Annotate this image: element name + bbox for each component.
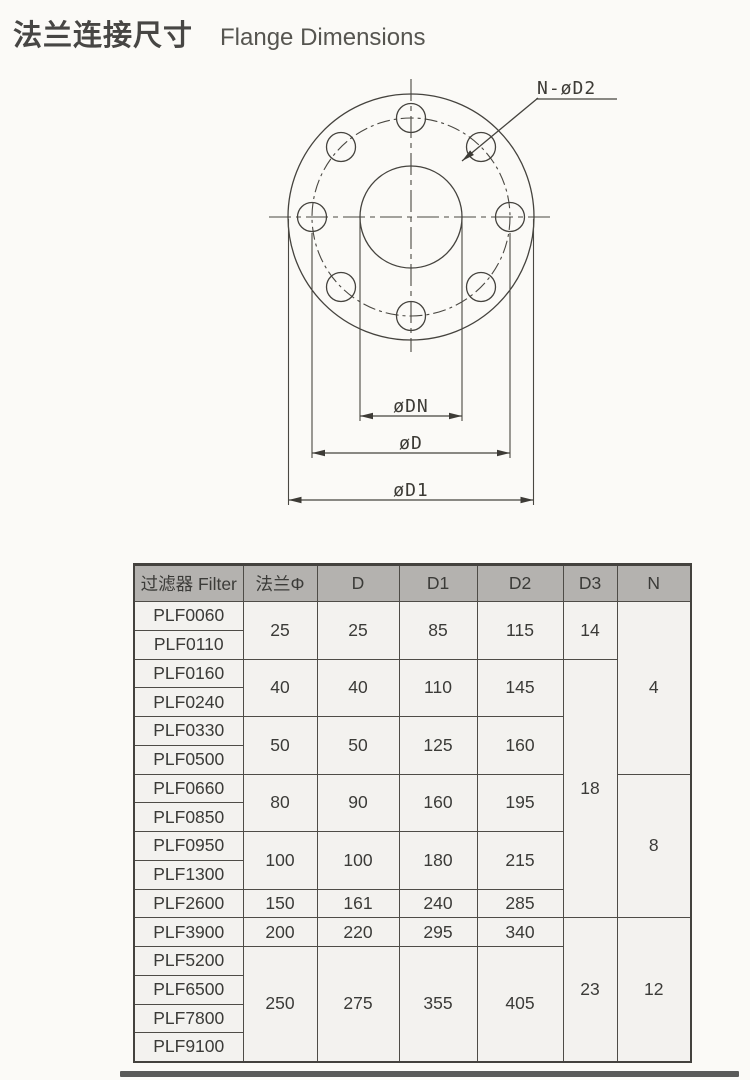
column-header: 法兰Φ <box>243 565 317 602</box>
model-cell: PLF2600 <box>134 889 243 918</box>
d-cell: 40 <box>317 659 399 717</box>
d-cell: 275 <box>317 947 399 1062</box>
model-cell: PLF6500 <box>134 975 243 1004</box>
flange-dia-cell: 250 <box>243 947 317 1062</box>
flange-dia-cell: 80 <box>243 774 317 832</box>
column-header: D <box>317 565 399 602</box>
table-head-row: 过滤器 Filter法兰ΦDD1D2D3N <box>134 565 691 602</box>
dim-label-d: øD <box>399 433 423 454</box>
flange-dia-cell: 50 <box>243 717 317 775</box>
flange-dia-cell: 100 <box>243 832 317 890</box>
n-cell: 8 <box>617 774 691 918</box>
d-cell: 90 <box>317 774 399 832</box>
table-row: PLF0060252585115144 <box>134 602 691 631</box>
model-cell: PLF9100 <box>134 1033 243 1062</box>
model-cell: PLF0660 <box>134 774 243 803</box>
model-cell: PLF0110 <box>134 630 243 659</box>
page: { "header": { "title_zh": "法兰连接尺寸", "tit… <box>0 0 750 1080</box>
d2-cell: 340 <box>477 918 563 947</box>
d2-cell: 145 <box>477 659 563 717</box>
callout-label: N-øD2 <box>537 78 596 99</box>
model-cell: PLF1300 <box>134 860 243 889</box>
dim-arrow <box>289 497 302 503</box>
flange-table: 过滤器 Filter法兰ΦDD1D2D3N PLF006025258511514… <box>133 563 692 1063</box>
d1-cell: 355 <box>399 947 477 1062</box>
d-cell: 100 <box>317 832 399 890</box>
d-cell: 161 <box>317 889 399 918</box>
flange-dia-cell: 40 <box>243 659 317 717</box>
model-cell: PLF0240 <box>134 688 243 717</box>
dim-arrow <box>360 413 373 419</box>
table-row: PLF39002002202953402312 <box>134 918 691 947</box>
d2-cell: 160 <box>477 717 563 775</box>
d-cell: 25 <box>317 602 399 660</box>
d-cell: 50 <box>317 717 399 775</box>
n-cell: 12 <box>617 918 691 1062</box>
model-cell: PLF0160 <box>134 659 243 688</box>
flange-drawing: N-øD2 øDN øD øD1 <box>0 0 750 545</box>
n-cell: 4 <box>617 602 691 775</box>
model-cell: PLF5200 <box>134 947 243 976</box>
table-body: PLF0060252585115144PLF0110PLF01604040110… <box>134 602 691 1062</box>
d2-cell: 215 <box>477 832 563 890</box>
d1-cell: 85 <box>399 602 477 660</box>
flange-dia-cell: 25 <box>243 602 317 660</box>
d1-cell: 125 <box>399 717 477 775</box>
model-cell: PLF0500 <box>134 745 243 774</box>
d-cell: 220 <box>317 918 399 947</box>
d1-cell: 110 <box>399 659 477 717</box>
d1-cell: 240 <box>399 889 477 918</box>
footer-rule <box>120 1071 739 1077</box>
d1-cell: 180 <box>399 832 477 890</box>
d2-cell: 195 <box>477 774 563 832</box>
dim-arrow <box>497 450 510 456</box>
d3-cell: 18 <box>563 659 617 918</box>
dim-label-d1: øD1 <box>393 480 429 501</box>
d3-cell: 14 <box>563 602 617 660</box>
d3-cell: 23 <box>563 918 617 1062</box>
d2-cell: 285 <box>477 889 563 918</box>
dim-arrow <box>449 413 462 419</box>
d1-cell: 160 <box>399 774 477 832</box>
column-header: N <box>617 565 691 602</box>
model-cell: PLF0950 <box>134 832 243 861</box>
d1-cell: 295 <box>399 918 477 947</box>
model-cell: PLF0060 <box>134 602 243 631</box>
model-cell: PLF7800 <box>134 1004 243 1033</box>
column-header: D1 <box>399 565 477 602</box>
d2-cell: 405 <box>477 947 563 1062</box>
flange-dia-cell: 150 <box>243 889 317 918</box>
bolt-hole <box>327 273 356 302</box>
model-cell: PLF3900 <box>134 918 243 947</box>
column-header: D2 <box>477 565 563 602</box>
column-header: 过滤器 Filter <box>134 565 243 602</box>
column-header: D3 <box>563 565 617 602</box>
flange-dia-cell: 200 <box>243 918 317 947</box>
d2-cell: 115 <box>477 602 563 660</box>
model-cell: PLF0850 <box>134 803 243 832</box>
callout-leader-line <box>462 98 538 161</box>
dim-arrow <box>521 497 534 503</box>
model-cell: PLF0330 <box>134 717 243 746</box>
dim-label-dn: øDN <box>393 396 429 417</box>
table-row: PLF0160404011014518 <box>134 659 691 688</box>
dim-arrow <box>312 450 325 456</box>
